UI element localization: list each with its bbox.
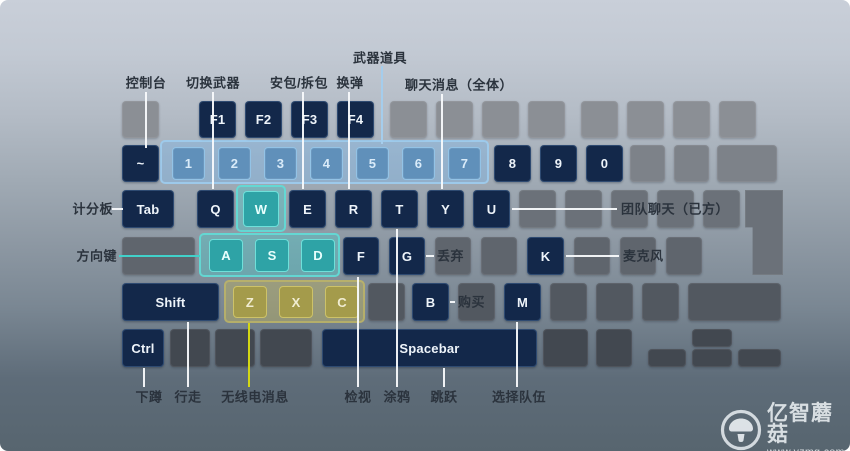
label-inspect: 检视	[344, 387, 371, 406]
key-period	[596, 283, 633, 321]
watermark-brand: 亿智蘑菇	[767, 403, 850, 445]
key-shift-left: Shift	[122, 283, 219, 321]
key-equals	[674, 145, 709, 182]
key-num2: 2	[218, 147, 251, 180]
key-t: T	[381, 190, 418, 228]
key-num7: 7	[448, 147, 481, 180]
key-ctrl-left: Ctrl	[122, 329, 164, 367]
key-c: C	[325, 286, 359, 318]
connector-line-scoreboard	[112, 208, 123, 210]
key-num9: 9	[540, 145, 577, 182]
connector-line-radio-message	[248, 323, 250, 387]
key-enter	[745, 190, 783, 275]
label-buy: 购买	[458, 292, 485, 311]
key-q: Q	[197, 190, 234, 228]
key-f1: F1	[199, 101, 236, 138]
key-a: A	[209, 239, 243, 272]
key-win	[170, 329, 210, 367]
key-f9	[581, 101, 618, 138]
key-backspace	[717, 145, 777, 182]
key-g: G	[389, 237, 425, 275]
key-spacebar: Spacebar	[322, 329, 537, 367]
label-chat-all: 聊天消息（全体）	[405, 75, 513, 94]
key-num8: 8	[494, 145, 531, 182]
connector-line-inspect	[357, 277, 359, 387]
key-grave: ~	[122, 145, 159, 182]
label-radio-message: 无线电消息	[221, 387, 289, 406]
label-weapon-items: 武器道具	[353, 48, 407, 67]
mushroom-icon	[720, 409, 762, 451]
connector-line-buy	[450, 301, 455, 303]
key-r: R	[335, 190, 372, 228]
key-s: S	[255, 239, 289, 272]
connector-line-walk	[187, 322, 189, 387]
key-num5: 5	[356, 147, 389, 180]
connector-line-chat-all	[441, 94, 443, 189]
label-console: 控制台	[126, 73, 167, 92]
connector-line-movement-keys	[119, 255, 200, 257]
key-f10	[627, 101, 664, 138]
key-arrow-up	[692, 329, 732, 347]
key-f12	[719, 101, 756, 138]
key-num6: 6	[402, 147, 435, 180]
watermark-url: www.yzmg.com	[767, 447, 850, 451]
key-quote	[666, 237, 702, 275]
label-plant-defuse: 安包/拆包	[270, 73, 328, 92]
key-m: M	[504, 283, 541, 321]
key-tab: Tab	[122, 190, 174, 228]
key-z: Z	[233, 286, 267, 318]
key-num4: 4	[310, 147, 343, 180]
key-x: X	[279, 286, 313, 318]
label-movement-keys: 方向键	[76, 246, 117, 265]
label-drop: 丢弃	[437, 246, 464, 265]
key-d: D	[301, 239, 335, 272]
watermark: 亿智蘑菇 www.yzmg.com	[720, 403, 850, 451]
label-jump: 跳跃	[430, 387, 457, 406]
key-num3: 3	[264, 147, 297, 180]
connector-line-drop	[426, 255, 434, 257]
key-f8	[528, 101, 565, 138]
key-f4: F4	[337, 101, 374, 138]
connector-line-weapon-items	[381, 66, 383, 144]
key-u: U	[473, 190, 510, 228]
connector-line-graffiti	[396, 229, 398, 387]
connector-line-jump	[443, 368, 445, 387]
connector-line-reload	[348, 92, 350, 189]
label-team-chat: 团队聊天（已方）	[621, 199, 729, 218]
label-scoreboard: 计分板	[72, 199, 113, 218]
connector-line-switch-weapons	[212, 92, 214, 189]
key-menu-left	[260, 329, 312, 367]
key-minus	[630, 145, 665, 182]
label-walk: 行走	[174, 387, 201, 406]
key-y: Y	[427, 190, 464, 228]
label-switch-weapons: 切换武器	[186, 73, 240, 92]
label-graffiti: 涂鸦	[383, 387, 410, 406]
key-f5	[390, 101, 427, 138]
connector-line-console	[145, 92, 147, 148]
connector-line-team-chat	[512, 208, 617, 210]
key-comma	[550, 283, 587, 321]
connector-line-choose-team	[516, 322, 518, 387]
key-f2: F2	[245, 101, 282, 138]
connector-line-crouch	[143, 368, 145, 387]
label-crouch: 下蹲	[135, 387, 162, 406]
key-f7	[482, 101, 519, 138]
connector-line-microphone	[566, 255, 619, 257]
key-k: K	[527, 237, 564, 275]
key-alt-right	[543, 329, 588, 367]
connector-line-plant-defuse	[302, 92, 304, 189]
key-menu-right	[596, 329, 632, 367]
key-w: W	[243, 191, 279, 227]
label-reload: 换弹	[336, 73, 363, 92]
keyboard-binding-diagram: F1F2F3F4~1234567890TabQWERTYUASDFGKShift…	[0, 0, 850, 451]
key-j	[481, 237, 517, 275]
label-microphone: 麦克风	[623, 246, 664, 265]
key-shift-right	[688, 283, 781, 321]
key-b: B	[412, 283, 449, 321]
key-e: E	[289, 190, 326, 228]
key-num1: 1	[172, 147, 205, 180]
key-slash	[642, 283, 679, 321]
key-arrow-down	[692, 349, 732, 367]
label-choose-team: 选择队伍	[492, 387, 546, 406]
key-f3: F3	[291, 101, 328, 138]
key-esc	[122, 101, 159, 138]
key-f11	[673, 101, 710, 138]
key-arrow-left	[648, 349, 686, 367]
key-arrow-right	[738, 349, 781, 367]
key-f: F	[343, 237, 379, 275]
key-num0: 0	[586, 145, 623, 182]
key-v	[368, 283, 405, 321]
